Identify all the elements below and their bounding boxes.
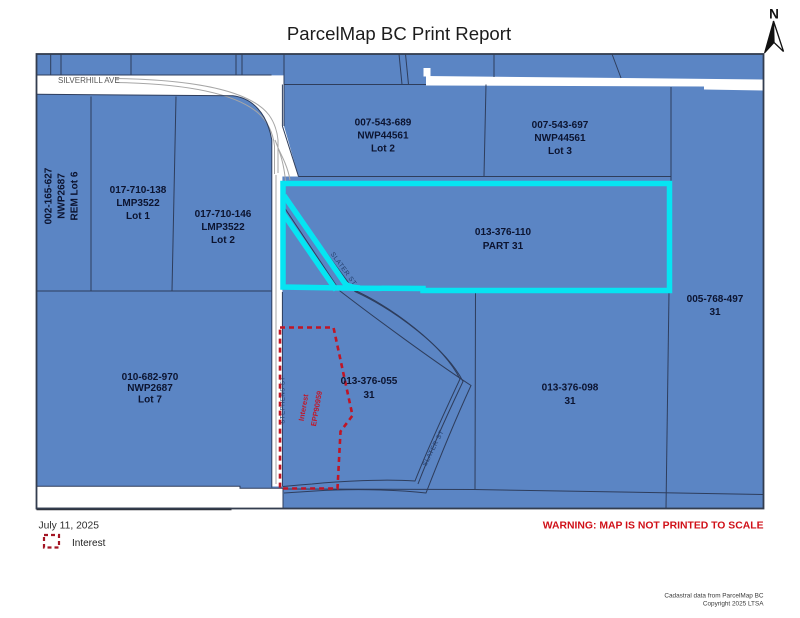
svg-text:Lot 2: Lot 2 bbox=[211, 235, 235, 246]
svg-text:ParcelMap BC Print Report: ParcelMap BC Print Report bbox=[287, 23, 512, 44]
svg-text:LMP3522: LMP3522 bbox=[201, 222, 245, 233]
svg-text:007-543-697: 007-543-697 bbox=[532, 120, 589, 131]
svg-text:NWP2687: NWP2687 bbox=[127, 383, 173, 394]
svg-text:013-376-098: 013-376-098 bbox=[542, 383, 599, 394]
svg-text:STEPHENS ST: STEPHENS ST bbox=[281, 376, 287, 423]
svg-text:WARNING: MAP IS NOT PRINTED TO: WARNING: MAP IS NOT PRINTED TO SCALE bbox=[543, 521, 764, 532]
svg-text:013-376-110: 013-376-110 bbox=[475, 227, 532, 238]
svg-text:NWP44561: NWP44561 bbox=[357, 131, 409, 142]
svg-text:31: 31 bbox=[709, 307, 721, 318]
svg-text:Copyright 2025 LTSA: Copyright 2025 LTSA bbox=[703, 601, 764, 608]
svg-text:005-768-497: 005-768-497 bbox=[687, 294, 744, 305]
svg-text:002-165-627: 002-165-627 bbox=[44, 167, 55, 224]
svg-text:NWP44561: NWP44561 bbox=[534, 133, 586, 144]
svg-text:Lot 7: Lot 7 bbox=[138, 395, 162, 406]
svg-text:013-376-055: 013-376-055 bbox=[341, 376, 398, 387]
svg-text:SILVERHILL AVE: SILVERHILL AVE bbox=[58, 76, 120, 85]
svg-text:N: N bbox=[769, 7, 779, 22]
svg-text:007-543-689: 007-543-689 bbox=[355, 118, 412, 129]
svg-text:July 11, 2025: July 11, 2025 bbox=[39, 521, 100, 532]
svg-text:PART 31: PART 31 bbox=[483, 241, 524, 252]
svg-text:Lot 2: Lot 2 bbox=[371, 144, 395, 155]
svg-text:Cadastral data from ParcelMap: Cadastral data from ParcelMap BC bbox=[664, 593, 763, 600]
svg-text:NWP2687: NWP2687 bbox=[57, 173, 68, 219]
svg-text:017-710-146: 017-710-146 bbox=[195, 209, 252, 220]
svg-text:31: 31 bbox=[363, 390, 375, 401]
svg-text:Lot 3: Lot 3 bbox=[548, 146, 572, 157]
svg-text:Interest: Interest bbox=[72, 538, 106, 549]
svg-text:017-710-138: 017-710-138 bbox=[110, 185, 167, 196]
svg-text:LMP3522: LMP3522 bbox=[116, 198, 160, 209]
svg-text:010-682-970: 010-682-970 bbox=[122, 372, 179, 383]
svg-text:Lot 1: Lot 1 bbox=[126, 211, 150, 222]
svg-text:31: 31 bbox=[564, 396, 576, 407]
svg-text:REM Lot 6: REM Lot 6 bbox=[70, 171, 81, 220]
